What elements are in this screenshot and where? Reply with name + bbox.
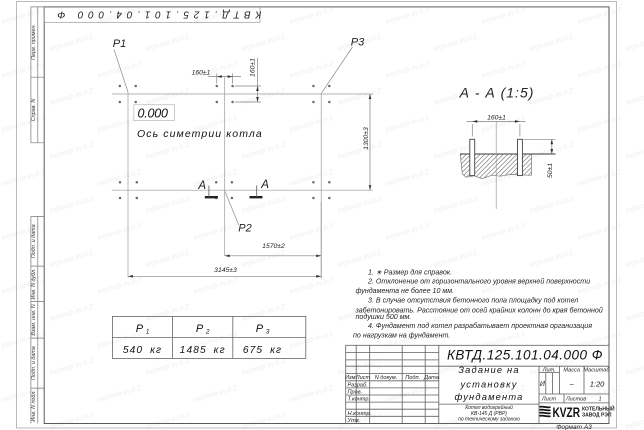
svg-text:Подп. и дата: Подп. и дата <box>31 346 37 380</box>
svg-text:А - А (1:5): А - А (1:5) <box>459 85 535 101</box>
svg-text:4. Фундамент под котел разраба: 4. Фундамент под котел разрабатывает про… <box>368 322 592 330</box>
svg-text:по техническому заданию: по техническому заданию <box>458 417 520 423</box>
svg-text:Справ. N: Справ. N <box>31 99 37 122</box>
svg-text:фундамента: фундамента <box>454 392 523 402</box>
svg-text:160±1: 160±1 <box>249 58 256 77</box>
svg-text:Лит.: Лит. <box>542 368 556 374</box>
svg-text:Лист: Лист <box>541 397 557 403</box>
svg-text:Н.контр.: Н.контр. <box>348 411 372 417</box>
svg-text:50±1: 50±1 <box>547 163 554 178</box>
svg-text:установку: установку <box>459 380 517 390</box>
svg-text:P2: P2 <box>238 223 251 235</box>
svg-text:Перв. примен.: Перв. примен. <box>31 24 37 60</box>
svg-text:Листов: Листов <box>565 397 586 403</box>
svg-text:–: – <box>569 381 574 388</box>
svg-text:1300±3: 1300±3 <box>363 127 370 150</box>
svg-text:P3: P3 <box>351 37 365 49</box>
svg-text:KVZR: KVZR <box>553 405 581 420</box>
svg-text:1485 кг: 1485 кг <box>180 345 226 356</box>
svg-text:675 кг: 675 кг <box>243 345 282 356</box>
svg-text:A: A <box>260 179 269 191</box>
svg-text:540 кг: 540 кг <box>123 345 162 356</box>
svg-text:Инв. N дубл.: Инв. N дубл. <box>31 268 37 299</box>
svg-text:Утв.: Утв. <box>347 418 361 424</box>
svg-text:0.000: 0.000 <box>137 107 168 121</box>
svg-text:Инв. N подл.: Инв. N подл. <box>31 390 37 422</box>
svg-text:1:20: 1:20 <box>590 380 605 389</box>
svg-text:ЗАВОД РЭП: ЗАВОД РЭП <box>582 413 612 419</box>
svg-text:1: 1 <box>598 397 601 403</box>
svg-text:3145±3: 3145±3 <box>214 267 237 274</box>
svg-text:Подп.: Подп. <box>405 375 420 381</box>
svg-text:Лист: Лист <box>355 375 371 381</box>
svg-text:P1: P1 <box>113 38 126 50</box>
svg-text:фундамента не более 10 мм.: фундамента не более 10 мм. <box>356 287 455 295</box>
svg-text:Разраб.: Разраб. <box>348 382 368 388</box>
svg-text:по нагрузкам на фундамент.: по нагрузкам на фундамент. <box>353 332 450 340</box>
svg-text:Задание на: Задание на <box>458 365 520 375</box>
svg-text:Масса: Масса <box>563 368 580 374</box>
svg-text:Дата: Дата <box>423 375 439 381</box>
svg-text:Пров.: Пров. <box>348 389 363 395</box>
svg-text:КВТД.125.101.04.000 Ф: КВТД.125.101.04.000 Ф <box>53 9 262 20</box>
svg-text:160±1: 160±1 <box>192 70 211 77</box>
svg-text:1570±2: 1570±2 <box>262 243 285 250</box>
svg-text:1. ∗ Размер для справок.: 1. ∗ Размер для справок. <box>368 268 452 276</box>
svg-text:2. Отклонение от горизонтально: 2. Отклонение от горизонтального уровня … <box>367 278 590 286</box>
svg-text:Взам. инв. N: Взам. инв. N <box>31 304 37 336</box>
svg-text:N докум.: N докум. <box>375 375 398 381</box>
svg-text:Ось симетрии котла: Ось симетрии котла <box>137 128 263 140</box>
svg-text:A: A <box>197 180 206 192</box>
svg-text:подушки 500 мм.: подушки 500 мм. <box>356 313 412 321</box>
svg-text:КОТЕЛЬНЫЙ: КОТЕЛЬНЫЙ <box>582 405 615 413</box>
svg-text:160±1: 160±1 <box>487 114 506 121</box>
svg-text:Т.контр.: Т.контр. <box>348 397 371 403</box>
svg-text:Подп. и дата: Подп. и дата <box>31 224 37 258</box>
svg-text:Масштаб: Масштаб <box>583 368 610 374</box>
svg-text:Формат А3: Формат А3 <box>556 424 592 430</box>
svg-text:3. В случае отсутствия бетонно: 3. В случае отсутствия бетонного пола пл… <box>368 297 578 305</box>
svg-text:КВТД.125.101.04.000 Ф: КВТД.125.101.04.000 Ф <box>447 347 603 362</box>
